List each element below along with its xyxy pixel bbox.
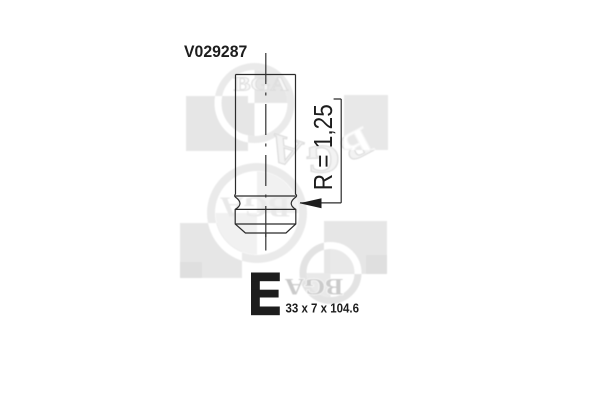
- svg-text:R = 1,25: R = 1,25: [310, 104, 339, 190]
- svg-text:V029287: V029287: [184, 42, 247, 61]
- svg-text:BGA: BGA: [285, 274, 343, 299]
- svg-text:33 x 7 x 104.6: 33 x 7 x 104.6: [286, 301, 360, 316]
- svg-text:BGA: BGA: [234, 73, 289, 95]
